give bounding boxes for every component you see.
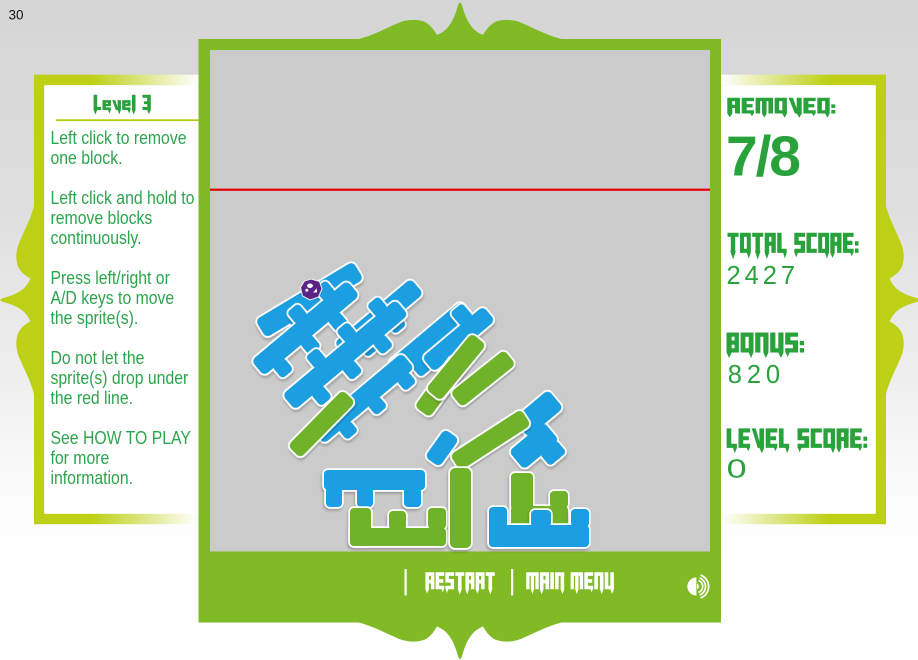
- svg-text:continuously.: continuously.: [51, 228, 142, 248]
- svg-text:Do not let the: Do not let the: [51, 348, 145, 368]
- svg-text:30: 30: [9, 8, 24, 23]
- svg-text:information.: information.: [51, 468, 133, 488]
- svg-text:A/D keys to move: A/D keys to move: [51, 288, 175, 308]
- svg-text:Left click to remove: Left click to remove: [51, 128, 187, 148]
- svg-text:for more: for more: [51, 448, 110, 468]
- svg-text:820: 820: [728, 361, 780, 389]
- svg-text:0: 0: [727, 456, 747, 484]
- svg-text:7/8: 7/8: [726, 124, 801, 188]
- svg-text:the sprite(s).: the sprite(s).: [51, 308, 139, 328]
- svg-text:sprite(s) drop under: sprite(s) drop under: [51, 368, 189, 388]
- svg-text:the red line.: the red line.: [51, 388, 134, 408]
- svg-text:remove blocks: remove blocks: [51, 208, 153, 228]
- svg-text:Press left/right or: Press left/right or: [51, 268, 171, 288]
- svg-text:Left click and hold to: Left click and hold to: [51, 188, 195, 208]
- svg-text:one block.: one block.: [51, 148, 123, 168]
- svg-text:See HOW TO PLAY: See HOW TO PLAY: [51, 428, 191, 448]
